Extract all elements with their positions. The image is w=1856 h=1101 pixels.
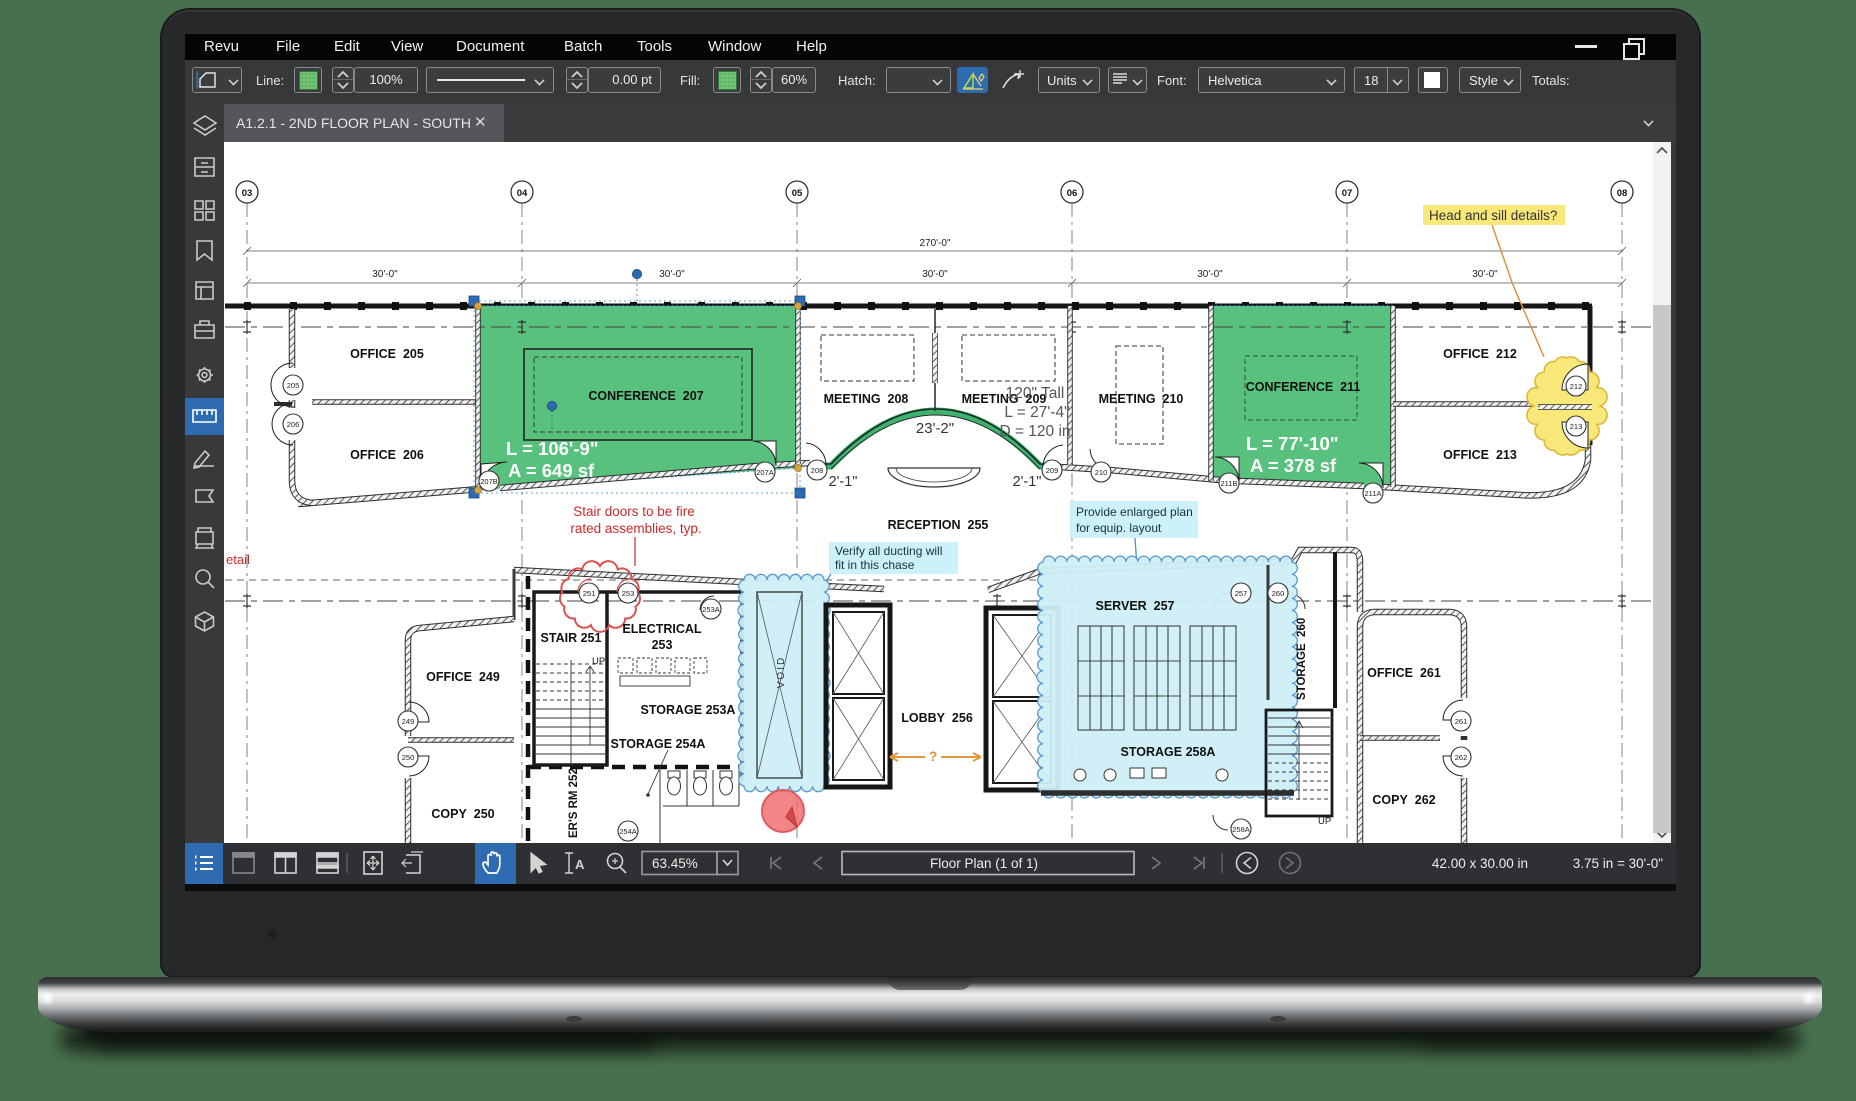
svg-text:30'-0": 30'-0" [372, 269, 398, 280]
svg-text:04: 04 [517, 188, 528, 199]
svg-text:Provide enlarged plan: Provide enlarged plan [1076, 505, 1193, 519]
svg-text:209: 209 [1046, 466, 1059, 475]
svg-text:30'-0": 30'-0" [1472, 269, 1498, 280]
svg-text:RECEPTION 255: RECEPTION 255 [888, 518, 989, 532]
svg-text:262: 262 [1455, 753, 1468, 762]
svg-text:fit in this chase: fit in this chase [835, 558, 915, 572]
svg-text:OFFICE 212: OFFICE 212 [1443, 347, 1517, 361]
svg-text:2'-1": 2'-1" [1013, 474, 1042, 490]
svg-text:3.75 in = 30'-0": 3.75 in = 30'-0" [1573, 856, 1664, 871]
svg-text:ELECTRICAL: ELECTRICAL [622, 622, 702, 636]
svg-text:253: 253 [622, 589, 635, 598]
svg-text:MEETING 208: MEETING 208 [824, 392, 909, 406]
svg-text:212: 212 [1570, 382, 1583, 391]
svg-text:?: ? [929, 748, 938, 764]
svg-text:254A: 254A [619, 827, 637, 836]
svg-text:30'-0": 30'-0" [922, 269, 948, 280]
svg-text:L = 106'-9": L = 106'-9" [506, 438, 599, 459]
svg-text:LOBBY 256: LOBBY 256 [901, 711, 973, 725]
svg-text:L = 77'-10": L = 77'-10" [1246, 433, 1339, 454]
svg-text:207A: 207A [756, 468, 774, 477]
svg-text:42.00 x 30.00 in: 42.00 x 30.00 in [1432, 856, 1528, 871]
svg-text:250: 250 [402, 753, 415, 762]
svg-text:249: 249 [402, 717, 415, 726]
svg-text:OFFICE 249: OFFICE 249 [426, 670, 500, 684]
svg-text:2'-1": 2'-1" [829, 474, 858, 490]
svg-text:205: 205 [287, 381, 300, 390]
svg-text:05: 05 [792, 188, 803, 199]
svg-text:CONFERENCE 207: CONFERENCE 207 [588, 389, 703, 403]
svg-text:ER'S RM 252: ER'S RM 252 [568, 768, 580, 838]
svg-text:206: 206 [287, 420, 300, 429]
svg-text:CONFERENCE 211: CONFERENCE 211 [1246, 380, 1361, 394]
svg-text:08: 08 [1617, 188, 1628, 199]
svg-text:STORAGE 253A: STORAGE 253A [641, 703, 736, 717]
svg-text:261: 261 [1455, 717, 1468, 726]
svg-text:A = 378 sf: A = 378 sf [1250, 455, 1337, 476]
svg-text:253A: 253A [702, 605, 720, 614]
svg-text:120" Tall: 120" Tall [1006, 385, 1065, 402]
svg-text:Stair doors to be fire: Stair doors to be fire [573, 504, 695, 519]
svg-text:STAIR 251: STAIR 251 [541, 631, 602, 645]
svg-text:COPY 262: COPY 262 [1372, 793, 1435, 807]
svg-text:SERVER 257: SERVER 257 [1096, 599, 1175, 613]
svg-text:OFFICE 261: OFFICE 261 [1367, 666, 1441, 680]
svg-text:OFFICE 213: OFFICE 213 [1443, 448, 1517, 462]
svg-text:VOID: VOID [776, 656, 787, 688]
svg-text:208: 208 [811, 466, 824, 475]
svg-text:270'-0": 270'-0" [919, 238, 950, 249]
svg-text:63.45%: 63.45% [652, 856, 698, 871]
svg-text:251: 251 [583, 589, 596, 598]
svg-text:etail: etail [226, 552, 250, 567]
svg-text:STORAGE 258A: STORAGE 258A [1121, 745, 1216, 759]
svg-text:211A: 211A [1365, 489, 1382, 498]
svg-text:07: 07 [1342, 188, 1353, 199]
svg-text:rated assemblies, typ.: rated assemblies, typ. [570, 521, 701, 536]
svg-text:Floor Plan (1 of 1): Floor Plan (1 of 1) [930, 856, 1038, 871]
svg-text:211B: 211B [1221, 479, 1238, 488]
svg-text:COPY 250: COPY 250 [431, 807, 494, 821]
svg-text:Verify all ducting will: Verify all ducting will [835, 544, 942, 558]
svg-text:A: A [575, 857, 585, 872]
svg-text:OFFICE 205: OFFICE 205 [350, 347, 424, 361]
svg-text:03: 03 [242, 188, 253, 199]
svg-text:06: 06 [1067, 188, 1078, 199]
svg-text:D = 120 in: D = 120 in [999, 423, 1070, 440]
svg-text:207B: 207B [480, 477, 498, 486]
svg-text:210: 210 [1095, 468, 1108, 477]
svg-text:257: 257 [1235, 589, 1248, 598]
svg-text:A = 649 sf: A = 649 sf [508, 460, 595, 481]
svg-text:253: 253 [652, 638, 673, 652]
svg-text:L = 27'-4": L = 27'-4" [1004, 404, 1069, 421]
svg-text:213: 213 [1570, 422, 1583, 431]
svg-text:OFFICE 206: OFFICE 206 [350, 448, 424, 462]
svg-text:STORAGE 260: STORAGE 260 [1296, 618, 1308, 700]
svg-text:30'-0": 30'-0" [659, 269, 685, 280]
svg-text:MEETING 210: MEETING 210 [1099, 392, 1184, 406]
svg-text:30'-0": 30'-0" [1197, 269, 1223, 280]
svg-text:UP: UP [1318, 816, 1331, 827]
svg-text:for equip. layout: for equip. layout [1076, 521, 1162, 535]
svg-text:23'-2": 23'-2" [916, 420, 954, 437]
svg-text:UP: UP [592, 656, 605, 667]
svg-text:260: 260 [1272, 589, 1285, 598]
svg-text:Head and sill details?: Head and sill details? [1429, 208, 1557, 223]
svg-text:STORAGE 254A: STORAGE 254A [611, 737, 706, 751]
svg-text:258A: 258A [1232, 825, 1250, 834]
